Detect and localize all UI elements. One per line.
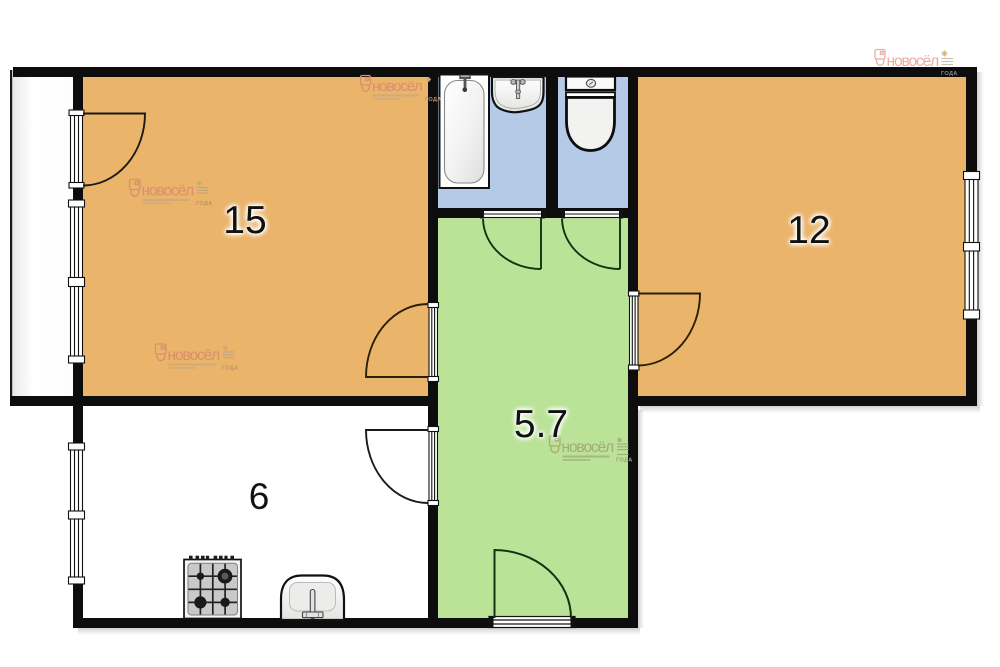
svg-text:6: 6	[249, 476, 270, 517]
svg-text:новосёл: новосёл	[372, 78, 422, 95]
svg-text:15: 15	[223, 199, 266, 242]
svg-text:ГОДА: ГОДА	[425, 97, 442, 103]
svg-text:новосёл: новосёл	[562, 439, 614, 456]
svg-text:ГОДА: ГОДА	[222, 366, 239, 372]
svg-text:ГОДА: ГОДА	[616, 458, 633, 464]
svg-text:12: 12	[787, 209, 830, 252]
svg-text:новосёл: новосёл	[168, 347, 220, 364]
svg-text:новосёл: новосёл	[142, 183, 194, 200]
svg-text:новосёл: новосёл	[887, 53, 939, 70]
svg-text:ГОДА: ГОДА	[941, 71, 958, 77]
svg-text:5.7: 5.7	[514, 403, 568, 446]
svg-text:ГОДА: ГОДА	[196, 201, 213, 207]
